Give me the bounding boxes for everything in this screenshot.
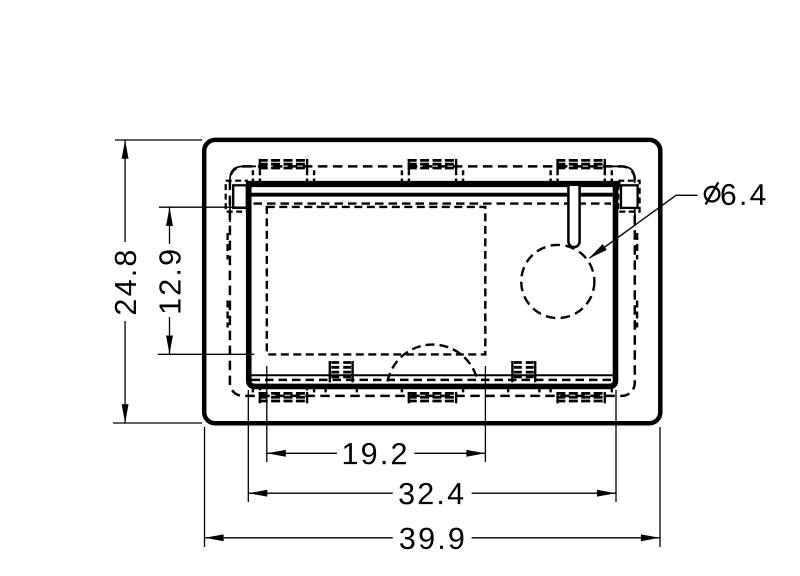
svg-text:6.4: 6.4 <box>720 179 769 212</box>
svg-text:24.8: 24.8 <box>109 247 143 315</box>
svg-text:32.4: 32.4 <box>398 477 466 511</box>
svg-text:39.9: 39.9 <box>399 522 467 556</box>
svg-text:12.9: 12.9 <box>154 247 188 315</box>
svg-text:19.2: 19.2 <box>342 437 410 471</box>
